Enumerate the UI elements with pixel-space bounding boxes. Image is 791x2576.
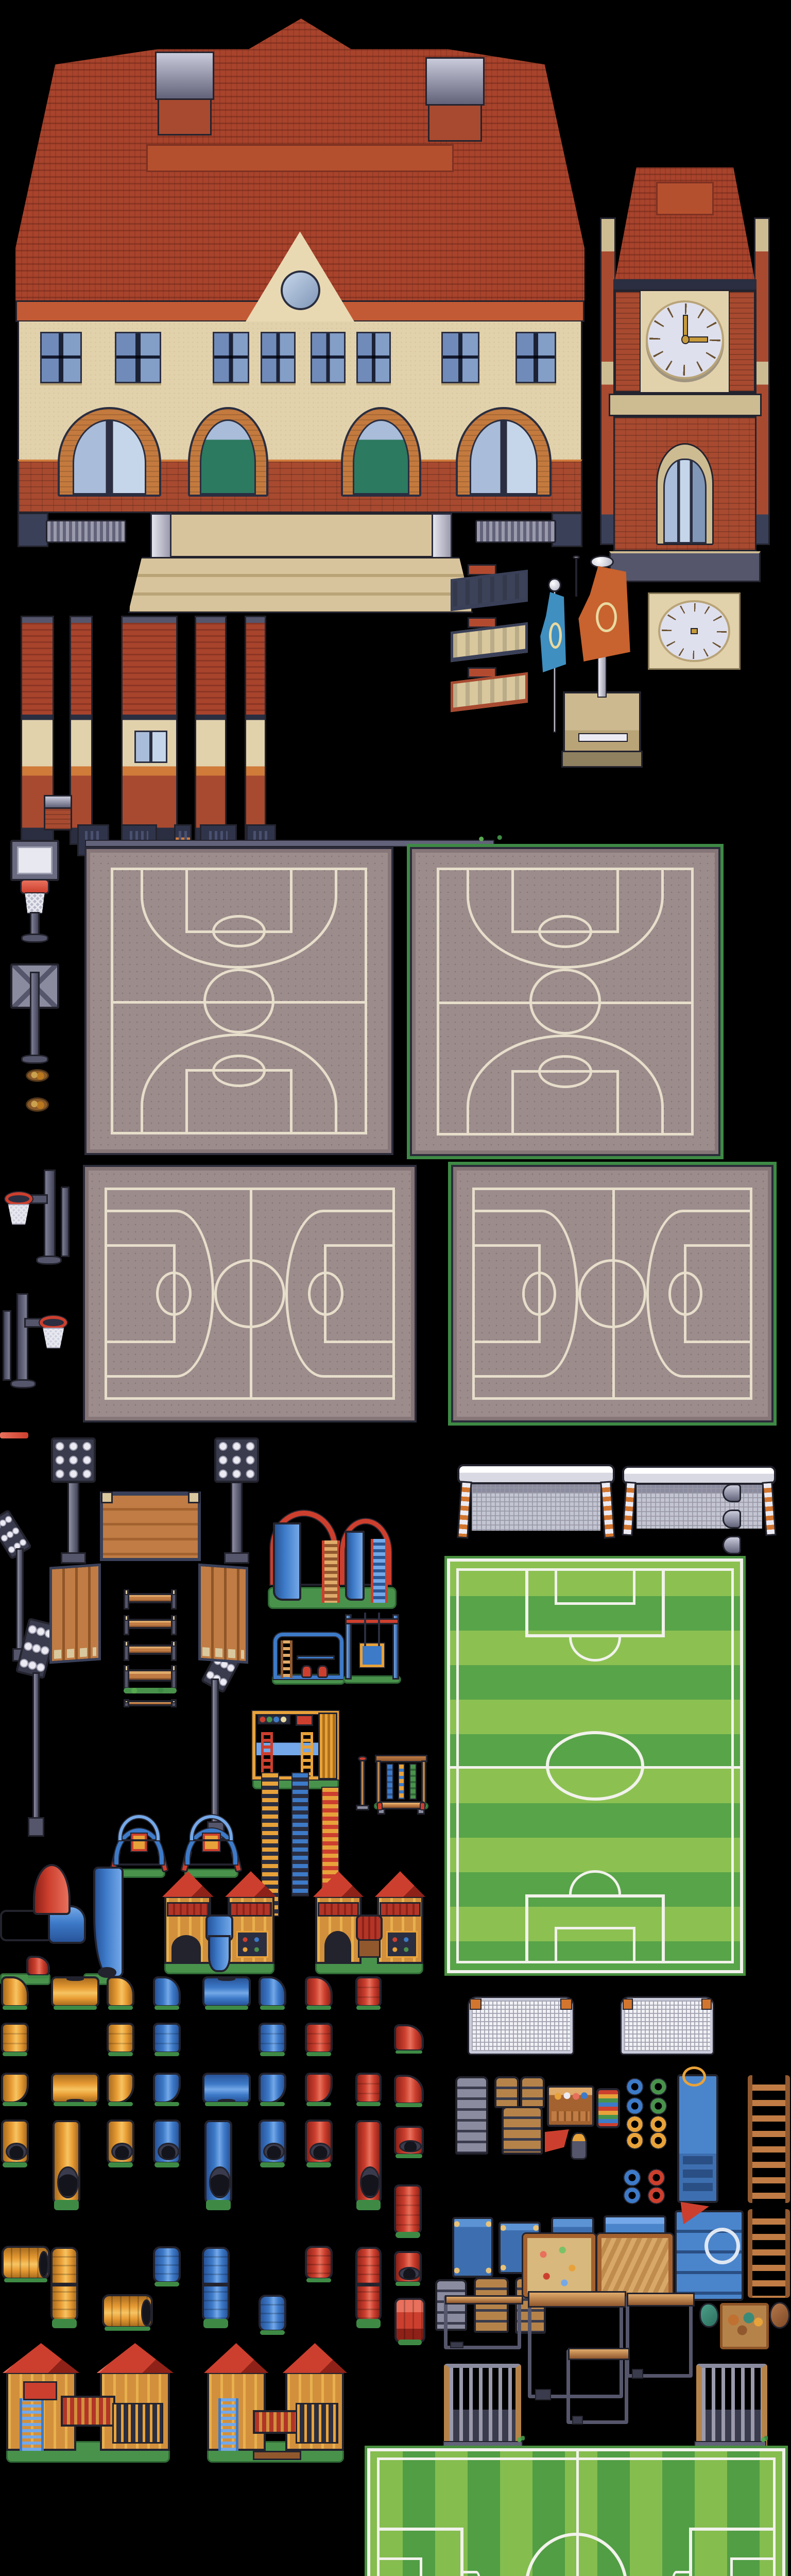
center-circle — [529, 969, 601, 1034]
free-throw-circle — [308, 1272, 343, 1316]
upper-window — [213, 332, 249, 383]
pipe-y-barrelh-r5 — [0, 2245, 51, 2280]
floodlight-base — [61, 1552, 86, 1564]
basketball-hoop-back — [10, 963, 59, 1064]
pipe-b-elbowup2-r3 — [257, 2072, 287, 2104]
goal-crossbar — [622, 1466, 776, 1485]
pipe-body — [394, 2075, 424, 2105]
soccer-goal-back-grass — [456, 1464, 616, 1541]
hoop-pole — [44, 1170, 56, 1257]
pyramid-roof — [375, 1871, 425, 1898]
basketball-court-portrait-grass — [412, 849, 718, 1154]
hurdle-bar — [127, 1645, 173, 1655]
pipe-y-straight-r2a — [0, 2022, 30, 2054]
flag-cloth — [540, 592, 566, 672]
chimney-red — [44, 799, 72, 831]
metal-gate-1 — [444, 2364, 521, 2449]
sandbox-filled — [523, 2234, 595, 2297]
pedestal — [563, 691, 641, 755]
hurdle-post — [124, 1589, 129, 1609]
gourd — [769, 2302, 790, 2329]
chimney-icon — [158, 76, 212, 136]
school-building — [15, 15, 584, 616]
basketball-hoop-side-right — [3, 1293, 67, 1388]
floodlight-front-2 — [212, 1437, 261, 1564]
pipe-b-elbow-r1 — [152, 1976, 182, 2008]
red-marker-line — [0, 1432, 28, 1438]
green-double-door — [353, 419, 409, 495]
ball-pump — [723, 1484, 741, 1502]
floodlight-head — [51, 1437, 96, 1483]
roof-eave — [613, 279, 756, 290]
red-door — [23, 2381, 57, 2400]
column-grill — [112, 2403, 164, 2444]
pipe-body — [394, 2126, 424, 2156]
pipe-body — [355, 2247, 382, 2322]
hurdle-post — [124, 1665, 129, 1689]
pipe-r-straight-r1 — [354, 1976, 383, 2008]
pipe-b-doublebarrel-r5 — [201, 2245, 231, 2324]
pipe-b-straight-r2a — [152, 2022, 182, 2054]
wall-strip-3-window — [121, 616, 178, 845]
ring-stacks-blue-green — [622, 2076, 671, 2116]
pipe-body — [153, 1976, 181, 2007]
ring-cabinet — [677, 2074, 718, 2203]
pole-cap — [358, 1756, 367, 1761]
awning-canopy — [451, 622, 528, 662]
goal-net — [472, 1483, 600, 1531]
pipe-body — [355, 2073, 382, 2104]
pipe-body — [259, 2120, 287, 2164]
rail-bridge — [61, 2396, 115, 2427]
pipe-b-elbowup-r3 — [152, 2072, 182, 2104]
pipe-body — [394, 2184, 422, 2234]
basketball-court-landscape — [85, 1167, 415, 1420]
pyramid-roof — [97, 2343, 174, 2374]
basketball-hoop-front — [10, 840, 59, 943]
entrance-platform — [152, 513, 451, 557]
curb-rail — [85, 840, 494, 847]
tube-slide — [208, 1935, 231, 1972]
pipe-body — [1, 2023, 29, 2054]
upper-window — [515, 332, 556, 383]
ladder — [291, 1772, 309, 1896]
blue-j-tube — [93, 1867, 124, 1978]
hurdle-2 — [124, 1615, 177, 1637]
goal-box — [730, 2557, 776, 2576]
entrance-steps — [128, 557, 473, 614]
ring-stacks-blue-red — [619, 2168, 669, 2205]
pipe-y-elbow2-r1 — [106, 1976, 135, 2008]
pipe-y-barrelh2-r5 — [100, 2294, 154, 2329]
pipe-y-end2-r4 — [106, 2119, 135, 2165]
pipe-y-endbarrel-r4 — [51, 2119, 81, 2205]
ring-stacks-yellow — [622, 2115, 671, 2149]
hoop-net — [42, 1328, 65, 1349]
soccer-goal-front-2 — [622, 1998, 713, 2054]
column-grill — [296, 2403, 338, 2444]
red-barrel — [394, 2298, 425, 2343]
juice-crate — [547, 2086, 594, 2127]
pipe-body — [51, 2073, 99, 2104]
free-throw-circle — [668, 1272, 702, 1316]
gym-ladder — [281, 1640, 293, 1679]
awning-canopy — [451, 570, 528, 611]
pipe-body — [259, 2023, 287, 2054]
metal-goal-frame-pair — [626, 2295, 693, 2378]
window-glass — [663, 459, 707, 543]
spring-rider — [301, 1665, 312, 1678]
doorway — [171, 1935, 201, 1962]
pipe-body — [153, 2073, 181, 2104]
hoop-base — [21, 1055, 48, 1064]
basketball-court-landscape-grass — [453, 1167, 771, 1420]
log-roller — [373, 1799, 429, 1815]
goal-box — [555, 1568, 636, 1605]
chair-stack-brown-2 — [520, 2076, 545, 2108]
upper-window — [115, 332, 161, 383]
swing-seat-frame — [345, 1614, 399, 1684]
center-circle — [214, 1259, 285, 1328]
pipe-body — [202, 2073, 251, 2104]
slat-band — [230, 1902, 272, 1917]
pipe-body — [1, 1976, 29, 2007]
pipe-r-col-a — [393, 2024, 425, 2052]
bead-window — [386, 1931, 418, 1958]
chair-stack-gray — [455, 2076, 488, 2155]
pyramid-roof — [204, 2343, 268, 2374]
arch-bridge-climber-2 — [182, 1811, 241, 1878]
hurdle-3 — [124, 1641, 177, 1663]
hoop-pole — [30, 972, 40, 1058]
clock-icon — [646, 300, 724, 379]
wall-strip-5 — [245, 616, 266, 845]
floodlight-pole — [231, 1482, 243, 1555]
pipe-r-elbowup-r3 — [304, 2072, 334, 2104]
doorway — [324, 1931, 351, 1962]
hurdle-bar — [127, 1700, 173, 1706]
pipe-body — [107, 2073, 135, 2104]
free-throw-circle — [538, 1055, 592, 1088]
awning-dark — [451, 564, 528, 616]
pipe-body — [305, 2073, 333, 2104]
bead-string — [398, 1764, 405, 1800]
slide-ladder — [371, 1539, 388, 1603]
hoop-net — [7, 1204, 30, 1225]
wall-strip-2 — [70, 616, 93, 845]
pipe-body — [202, 2247, 230, 2322]
soccer-goal-back — [621, 1466, 778, 1539]
awning-tan — [451, 617, 528, 666]
hoop-rim — [40, 1316, 67, 1329]
abacus-bar — [375, 1755, 427, 1762]
slide-ladder — [322, 1540, 340, 1603]
eggplant — [699, 2303, 719, 2328]
blue-ladder — [20, 2398, 43, 2451]
hurdle-bar — [127, 1669, 173, 1682]
hoop-base — [21, 934, 48, 943]
hoop-net — [24, 892, 46, 914]
roof-ridge-beam — [146, 144, 454, 172]
clock-icon — [658, 600, 730, 663]
pole-base — [356, 1805, 369, 1810]
produce-stand — [720, 2303, 769, 2349]
bead-rail — [257, 1715, 290, 1724]
pipe-y-elbow-r1 — [0, 1976, 30, 2008]
floodlight-facing-right — [202, 1638, 236, 1839]
pipe-body — [26, 1956, 49, 1976]
goal-post — [622, 1482, 637, 1536]
pipe-body — [51, 1976, 99, 2007]
ball-pump — [723, 1536, 741, 1554]
pyramid-roof — [283, 2343, 347, 2374]
red-panel — [296, 1715, 313, 1726]
hurdle-post — [171, 1641, 177, 1661]
hoop-pole — [30, 912, 40, 937]
backboard — [10, 840, 59, 881]
free-throw-circle — [212, 915, 266, 947]
pipe-y-straight-r2b — [106, 2022, 135, 2054]
pipe-body — [259, 1976, 287, 2007]
clock-tower — [600, 167, 770, 582]
pipe-body — [153, 2246, 181, 2283]
pipe-r-barrel-r5 — [304, 2245, 334, 2280]
pipe-r-col-open — [393, 2125, 425, 2156]
pennant-and-bottle — [545, 2129, 589, 2158]
slat-band — [167, 1902, 209, 1917]
pipe-b-tee-r1 — [201, 1976, 252, 2008]
wooden-wall-board — [100, 1492, 201, 1561]
pipe-body — [259, 2073, 287, 2104]
pipe-body — [153, 2023, 181, 2054]
green-double-door — [200, 419, 256, 495]
pipe-body — [50, 2247, 79, 2322]
bridge-rail — [190, 1815, 233, 1840]
bead-string — [409, 1764, 416, 1800]
pipe-body — [259, 2295, 287, 2332]
pyramid-roof — [162, 1871, 214, 1898]
gym-bar — [297, 1655, 335, 1659]
hurdle-post — [124, 1641, 129, 1661]
floodlight-front-1 — [49, 1437, 98, 1564]
pipe-b-teeup-r3 — [201, 2072, 252, 2104]
hoop-rim — [20, 879, 49, 894]
hurdle-post — [124, 1615, 129, 1635]
pipe-body — [204, 2120, 233, 2203]
pipe-body — [394, 2024, 424, 2052]
chair-stack-brown-1 — [494, 2076, 519, 2108]
pipe-body — [107, 1976, 135, 2007]
awning-tan-red — [451, 667, 528, 716]
pipe-b-barrel2-r5 — [257, 2294, 287, 2332]
pipe-body — [394, 2251, 422, 2283]
side-base-block — [18, 513, 48, 548]
pipe-b-end2-r4 — [257, 2119, 287, 2165]
pavilion-fort-1 — [3, 2343, 174, 2463]
soccer-field-landscape — [367, 2448, 785, 2576]
playhouse-bridge — [313, 1871, 425, 1974]
upper-window — [356, 332, 391, 383]
slide-double — [268, 1509, 397, 1609]
pipe-r-endbarrel-r4 — [354, 2119, 383, 2205]
pipe-b-endbarrel-r4 — [203, 2119, 233, 2205]
slide-chute — [273, 1522, 301, 1601]
floodlight-head — [214, 1437, 259, 1483]
connector — [356, 1914, 383, 1941]
dirt-patch-1 — [26, 1069, 49, 1082]
dirt-patch-2 — [26, 1097, 49, 1112]
pipe-body — [102, 2294, 153, 2328]
pipe-r-straight-r2 — [304, 2022, 334, 2054]
wall-strip-4 — [195, 616, 227, 845]
pyramid-roof — [3, 2343, 79, 2374]
hurdle-flat — [124, 1696, 177, 1710]
tube-slide — [358, 1939, 381, 1958]
slat-band — [318, 1902, 359, 1917]
pipe-y-tee-r1 — [49, 1976, 101, 2008]
pipe-body — [107, 2120, 135, 2164]
roof-cap — [656, 182, 714, 215]
red-arch-tube — [33, 1864, 71, 1915]
pavilion-fort-2 — [204, 2343, 347, 2463]
floodlight-pole — [32, 1672, 40, 1824]
awning-canopy — [451, 672, 528, 712]
hurdle-bar — [127, 1619, 173, 1629]
penalty-arc — [461, 2571, 482, 2576]
clock-face-tile — [648, 592, 741, 670]
upper-window — [311, 332, 345, 383]
pipe-body — [355, 1976, 382, 2007]
blue-ladder — [218, 2398, 238, 2451]
center-circle — [203, 969, 275, 1034]
pipe-body — [305, 2120, 333, 2164]
goal-post — [600, 1481, 615, 1538]
goal-box — [555, 1927, 636, 1963]
ball-pumps — [720, 1484, 743, 1556]
plank-panel-left — [49, 1564, 101, 1664]
pipe-y-elbowup2-r3 — [106, 2072, 135, 2104]
fort-tower — [318, 1713, 337, 1780]
wooden-ladder-1 — [748, 2075, 790, 2203]
hoop-rim — [5, 1192, 32, 1206]
center-circle — [546, 1731, 644, 1801]
window-glass — [470, 419, 537, 495]
floodlight-pole — [67, 1482, 79, 1555]
pipe-red-elbow-top — [26, 1955, 50, 1977]
pole-finial — [590, 555, 614, 568]
hoop-base — [36, 1256, 62, 1265]
pipe-body — [305, 2023, 333, 2054]
climbing-pole — [354, 1756, 371, 1810]
pipe-body — [1, 2120, 29, 2164]
hoop-pole — [3, 1310, 12, 1381]
slat-band — [380, 1902, 421, 1917]
vent-grate — [475, 520, 556, 543]
pipe-r-col-end — [393, 2250, 423, 2284]
bridge-rail — [118, 1815, 159, 1840]
hoop-pole — [61, 1187, 70, 1257]
clock-pin — [691, 628, 697, 634]
pipe-body — [355, 2120, 382, 2203]
upper-window — [40, 332, 82, 383]
pipe-body — [1, 2073, 29, 2104]
pipe-body — [305, 1976, 333, 2007]
soccer-field-portrait — [447, 1558, 743, 1973]
tube-playset — [0, 1864, 126, 1985]
pipe-y-teeup-r3 — [49, 2072, 101, 2104]
pipe-b-straight-r2b — [257, 2022, 287, 2054]
metal-goal-frame-small — [444, 2295, 521, 2349]
goal-crossbar — [457, 1464, 615, 1484]
hurdle-post — [124, 1699, 129, 1708]
pipe-r-doublebarrel-r5 — [354, 2245, 383, 2324]
pipe-y-end-r4 — [0, 2119, 30, 2165]
hurdle-4-grass — [124, 1665, 177, 1691]
pipe-body — [2, 2246, 50, 2279]
pyramid-roof — [225, 1871, 277, 1898]
stone-band — [609, 394, 762, 416]
plank-panel-right — [198, 1564, 248, 1664]
goal-post — [457, 1481, 472, 1538]
slide-chute — [345, 1531, 365, 1601]
pipe-body — [107, 2023, 135, 2054]
basketball-court-portrait — [87, 849, 391, 1153]
soccer-goal-front-1 — [469, 1998, 573, 2054]
flag-orange-on-stand — [563, 555, 641, 768]
pipe-body — [53, 2120, 81, 2203]
blue-mat-1 — [452, 2217, 493, 2278]
floodlight-base — [224, 1552, 249, 1564]
disc-stack — [596, 2088, 620, 2128]
hurdle-1 — [124, 1589, 177, 1611]
flag-cloth — [578, 566, 630, 662]
sandbox-empty — [597, 2234, 673, 2297]
pipe-body — [305, 2246, 333, 2279]
bead-string — [386, 1764, 393, 1800]
small-items-grid — [696, 2231, 791, 2300]
pipe-r-elbow-r1 — [304, 1976, 334, 2008]
pipe-r-col-straight — [393, 2183, 423, 2235]
spring-rider — [317, 1665, 328, 1678]
pedestal-skirt — [561, 751, 643, 768]
step-board — [253, 2451, 302, 2461]
pipe-r-straight-r3 — [354, 2072, 383, 2104]
playhouse-tube-slide — [162, 1871, 277, 1974]
hurdle-bar — [127, 1593, 173, 1603]
log — [376, 1801, 426, 1810]
hoop-pole — [17, 1293, 29, 1381]
basketball-hoop-side-left — [5, 1170, 70, 1265]
swing-seat — [360, 1643, 384, 1667]
upper-window — [441, 332, 479, 383]
pipe-y-elbowup-r3 — [0, 2072, 30, 2104]
floodlight-base — [28, 1817, 44, 1837]
window-glass — [73, 419, 146, 495]
pole-finial — [548, 578, 561, 592]
free-throw-circle — [212, 1055, 266, 1087]
jungle-gym — [272, 1631, 345, 1685]
pyramid-roof — [313, 1871, 364, 1898]
arched-window — [656, 443, 714, 545]
metal-gate-2 — [696, 2364, 767, 2449]
swing-top-bar — [345, 1618, 399, 1624]
bead-window — [236, 1931, 268, 1958]
floodlight-facing-down — [21, 1620, 51, 1837]
free-throw-circle — [538, 915, 592, 948]
hurdle-post — [171, 1615, 177, 1635]
pipe-b-elbow2-r1 — [257, 1976, 287, 2008]
goal-post — [762, 1482, 777, 1536]
